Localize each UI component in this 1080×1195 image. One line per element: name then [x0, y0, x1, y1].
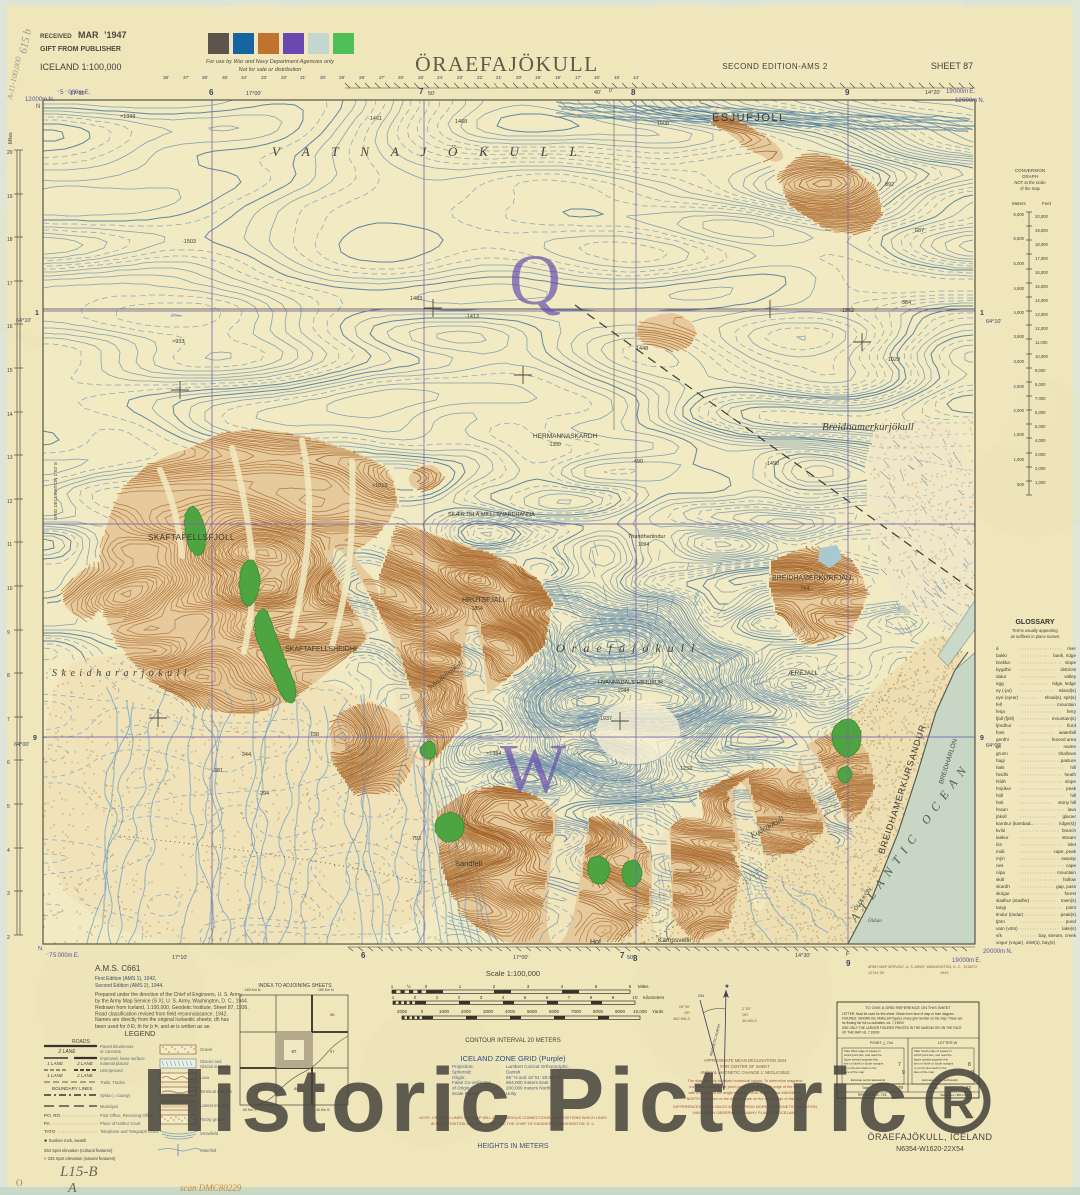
svg-text:★: ★ — [724, 983, 729, 990]
svg-text:CONVERSION: CONVERSION — [1015, 168, 1045, 173]
svg-text:vogur (vogar), inlet(s), bay(s: vogur (vogar), inlet(s), bay(s) — [996, 940, 1055, 945]
svg-text:12 000m N.: 12 000m N. — [955, 98, 985, 104]
svg-text:×1013: ×1013 — [372, 483, 387, 489]
svg-text:NOT at the scale: NOT at the scale — [1014, 180, 1046, 185]
svg-text:13,000: 13,000 — [1035, 312, 1048, 317]
svg-text:Miles: Miles — [638, 984, 649, 989]
svg-text:ravine: ravine — [1063, 744, 1076, 749]
svg-text:fell: fell — [996, 702, 1002, 707]
svg-text:N: N — [36, 104, 40, 110]
svg-text:17°00′: 17°00′ — [246, 91, 261, 97]
svg-text:·1490: ·1490 — [765, 461, 779, 467]
svg-text:GN: GN — [698, 993, 704, 998]
svg-text:BREIDHAMERKURFJALL: BREIDHAMERKURFJALL — [772, 575, 854, 582]
svg-text:Scale 1:100,000: Scale 1:100,000 — [486, 969, 540, 978]
svg-text:20: 20 — [7, 150, 13, 156]
svg-text:districts: districts — [1060, 667, 1076, 672]
svg-text:·1029: ·1029 — [886, 357, 900, 363]
svg-text:462 MILS: 462 MILS — [673, 1016, 690, 1021]
svg-text:2 LANE: 2 LANE — [76, 1073, 94, 1078]
svg-text:hnjúkur: hnjúkur — [996, 786, 1012, 791]
svg-text:kambur (kambad..: kambur (kambad.. — [996, 821, 1033, 826]
svg-text:branch: branch — [1062, 828, 1076, 833]
svg-text:FIGURES: IGNORE the SMALLER: FIGURES: IGNORE the SMALLER figures of a… — [842, 1017, 963, 1021]
svg-text:USE ONLY THE LARGER FIGURES PR: USE ONLY THE LARGER FIGURES PRINTED IN T… — [842, 1026, 962, 1030]
svg-text:Place of Harbor Court: Place of Harbor Court — [100, 1121, 141, 1126]
svg-text:á: á — [996, 646, 999, 651]
svg-text:5000: 5000 — [527, 1009, 538, 1014]
svg-text:SKAFTAFELLSHEIDHI: SKAFTAFELLSHEIDHI — [285, 646, 357, 653]
svg-text:1: 1 — [980, 310, 984, 317]
svg-text:egg: egg — [996, 681, 1004, 686]
svg-text:ARMY MAP SERVICE, U. S. ARMY,: ARMY MAP SERVICE, U. S. ARMY, WASHINGTON… — [868, 965, 977, 969]
svg-text:vatn (vötn): vatn (vötn) — [996, 926, 1018, 931]
svg-text:9,000: 9,000 — [1035, 368, 1046, 373]
svg-text:0′: 0′ — [609, 88, 613, 94]
svg-text:3,000: 3,000 — [1014, 359, 1025, 364]
svg-text:9000: 9000 — [615, 1009, 626, 1014]
svg-text:14′: 14′ — [633, 75, 639, 80]
svg-text:·384: ·384 — [900, 300, 911, 306]
svg-text:1943: 1943 — [940, 971, 948, 975]
svg-text:15′: 15′ — [614, 75, 620, 80]
svg-text:hagi: hagi — [996, 758, 1005, 763]
svg-text:14°30′: 14°30′ — [795, 953, 810, 959]
svg-text:26′: 26′ — [398, 75, 404, 80]
svg-text:2,000: 2,000 — [1035, 466, 1046, 471]
svg-text:laekur: laekur — [996, 835, 1009, 840]
svg-text:·1503: ·1503 — [182, 239, 196, 245]
svg-text:8000: 8000 — [593, 1009, 604, 1014]
svg-text:R: R — [941, 1076, 974, 1128]
svg-text:lava: lava — [1068, 807, 1077, 812]
svg-text:hill: hill — [1070, 765, 1076, 770]
svg-text:17°10′: 17°10′ — [70, 91, 85, 97]
svg-text:dalur: dalur — [996, 674, 1007, 679]
svg-text:First Edition (AMS 1), 1942,: First Edition (AMS 1), 1942, — [95, 976, 156, 982]
svg-text:1 LANE: 1 LANE — [47, 1073, 64, 1078]
svg-text:ridge(s)): ridge(s)) — [1059, 821, 1077, 826]
svg-text:13: 13 — [7, 455, 13, 461]
svg-text:20 000m N.: 20 000m N. — [983, 949, 1013, 955]
svg-text:5,000: 5,000 — [1014, 261, 1025, 266]
svg-text:SKAFTAFELLSFJOLL: SKAFTAFELLSFJOLL — [148, 533, 235, 542]
svg-text:4: 4 — [7, 848, 10, 854]
svg-text:island(s): island(s) — [1059, 688, 1077, 693]
svg-text:vík: vík — [996, 933, 1003, 938]
svg-text:ferry: ferry — [1067, 709, 1077, 714]
svg-text:6: 6 — [209, 88, 214, 97]
svg-text:shoal(s), spit(s): shoal(s), spit(s) — [1045, 695, 1077, 700]
svg-text:8: 8 — [7, 673, 10, 679]
svg-text:28′: 28′ — [359, 75, 365, 80]
svg-text:ÆREJALL: ÆREJALL — [788, 670, 819, 677]
svg-text:material placed: material placed — [100, 1061, 129, 1066]
svg-text:6: 6 — [361, 951, 366, 960]
svg-text:9: 9 — [33, 735, 37, 742]
svg-text:1000: 1000 — [439, 1009, 450, 1014]
svg-text:tindur (tindar): tindur (tindar) — [996, 912, 1024, 917]
svg-text:2: 2 — [7, 935, 10, 941]
svg-text:10: 10 — [7, 586, 13, 592]
svg-text:Q: Q — [509, 240, 561, 320]
svg-text:HERMANNASKARDH: HERMANNASKARDH — [533, 433, 598, 440]
svg-text:·344: ·344 — [240, 752, 251, 758]
svg-text:19 000m E.: 19 000m E. — [952, 958, 981, 964]
svg-text:ferja: ferja — [996, 709, 1005, 714]
svg-text:lón: lón — [996, 842, 1003, 847]
svg-text:15,000: 15,000 — [1035, 284, 1048, 289]
svg-text:11: 11 — [7, 542, 12, 548]
svg-text:V A T N A J Ö K: V A T N A J Ö K U L L — [272, 144, 580, 159]
svg-text:HVANNADALS-HNJÚKUR: HVANNADALS-HNJÚKUR — [598, 679, 663, 686]
svg-text:64°00′: 64°00′ — [14, 742, 29, 748]
svg-text:OR: OR — [684, 1010, 690, 1015]
svg-text:gap, pass: gap, pass — [1056, 884, 1077, 889]
svg-text:31′: 31′ — [300, 75, 306, 80]
svg-text:Names are directly from the or: Names are directly from the original Ice… — [95, 1017, 229, 1023]
svg-text:Second Edition (AMS 2), 1944.: Second Edition (AMS 2), 1944. — [95, 983, 164, 989]
svg-text:waterfall: waterfall — [1059, 730, 1076, 735]
svg-text:bakki: bakki — [996, 653, 1007, 658]
svg-text:4000: 4000 — [505, 1009, 516, 1014]
svg-text:Sýsla (= county): Sýsla (= county) — [100, 1093, 131, 1098]
svg-text:1,000: 1,000 — [1035, 480, 1046, 485]
svg-text:30′: 30′ — [320, 75, 326, 80]
svg-text:SHEET 87: SHEET 87 — [931, 61, 973, 71]
svg-text:12 000m N.: 12 000m N. — [25, 97, 55, 103]
svg-text:500: 500 — [1017, 482, 1025, 487]
svg-text:3,000: 3,000 — [1035, 452, 1046, 457]
svg-text:9: 9 — [846, 959, 851, 968]
svg-text:S k e i d h a r a r j o k u l: S k e i d h a r a r j o k u l l — [52, 668, 188, 679]
svg-text:nípa: nípa — [996, 870, 1005, 875]
svg-text:6,000: 6,000 — [1035, 410, 1046, 415]
svg-text:ROADS: ROADS — [72, 1039, 90, 1045]
svg-text:⁻7 5 000m E.: ⁻7 5 000m E. — [46, 953, 80, 959]
svg-text:16: 16 — [7, 324, 13, 330]
svg-text:✱ Sunken rock, awash: ✱ Sunken rock, awash — [44, 1138, 87, 1143]
svg-text:17,000: 17,000 — [1035, 256, 1048, 261]
svg-text:hill: hill — [1070, 793, 1076, 798]
svg-text:ESJUFJOLL: ESJUFJOLL — [712, 112, 787, 124]
svg-text:múli: múli — [996, 849, 1004, 854]
svg-text:Prepared under the direction o: Prepared under the direction of the Chie… — [95, 992, 243, 998]
svg-text:point: point — [1066, 905, 1077, 910]
svg-text:town(s): town(s) — [1061, 898, 1077, 903]
svg-text:3: 3 — [7, 891, 10, 897]
svg-text:·1413: ·1413 — [465, 314, 479, 320]
svg-text:4,500: 4,500 — [1014, 286, 1025, 291]
svg-text:ICELAND 1:100,000: ICELAND 1:100,000 — [40, 62, 122, 72]
svg-text:11,000: 11,000 — [1035, 340, 1048, 345]
svg-text:eyri (eyrar): eyri (eyrar) — [996, 695, 1019, 700]
svg-text:15: 15 — [7, 368, 13, 374]
svg-text:swamp: swamp — [1061, 856, 1076, 861]
svg-text:38′: 38′ — [163, 75, 169, 80]
svg-text:18,000: 18,000 — [1035, 242, 1048, 247]
svg-text:7: 7 — [620, 951, 625, 960]
svg-text:’1947: ’1947 — [104, 30, 127, 40]
svg-text:forest: forest — [1065, 891, 1077, 896]
svg-text:16,000: 16,000 — [1035, 270, 1048, 275]
svg-text:as suffixes in place names: as suffixes in place names — [1010, 634, 1059, 639]
svg-text:12: 12 — [7, 499, 13, 505]
svg-text:GRAPH: GRAPH — [1022, 174, 1038, 179]
svg-text:Miles: Miles — [8, 132, 14, 144]
svg-text:19 000m E.: 19 000m E. — [946, 89, 975, 95]
svg-text:17°10′: 17°10′ — [172, 955, 187, 961]
svg-text:64°10′: 64°10′ — [986, 319, 1001, 325]
svg-text:2044: 2044 — [618, 688, 629, 694]
svg-text:brekka: brekka — [996, 660, 1010, 665]
svg-text:shallows: shallows — [1058, 751, 1076, 756]
svg-text:gil: gil — [996, 744, 1001, 749]
svg-text:35′: 35′ — [222, 75, 228, 80]
svg-text:GIFT FROM PUBLISHER: GIFT FROM PUBLISHER — [40, 46, 121, 53]
svg-text:Breidhamerkurjökull: Breidhamerkurjökull — [822, 421, 914, 433]
svg-text:19: 19 — [7, 194, 13, 200]
svg-text:glacier: glacier — [1062, 814, 1076, 819]
svg-text:tjörn: tjörn — [996, 919, 1005, 924]
svg-text:MAR: MAR — [78, 30, 99, 40]
svg-text:687: 687 — [915, 228, 924, 234]
svg-text:·294: ·294 — [258, 791, 269, 797]
svg-text:29′: 29′ — [339, 75, 345, 80]
svg-text:5: 5 — [7, 804, 10, 810]
svg-text:·1508: ·1508 — [655, 121, 669, 127]
svg-text:12744 30: 12744 30 — [868, 971, 884, 975]
svg-text:hóll: hóll — [996, 793, 1003, 798]
svg-text:17: 17 — [7, 281, 13, 287]
svg-text:TATO: TATO — [44, 1129, 56, 1134]
svg-text:×1399: ×1399 — [120, 114, 135, 120]
svg-text:RECEIVED: RECEIVED — [40, 33, 72, 40]
svg-text:heidhi: heidhi — [996, 772, 1008, 777]
svg-text:6,000: 6,000 — [1014, 212, 1025, 217]
svg-text:160 Km N.: 160 Km N. — [318, 988, 335, 992]
svg-text:2,000: 2,000 — [1014, 408, 1025, 413]
svg-text:holt: holt — [996, 800, 1004, 805]
svg-text:W: W — [500, 731, 566, 808]
svg-text:2000: 2000 — [397, 1009, 408, 1014]
svg-text:6000: 6000 — [549, 1009, 560, 1014]
svg-text:TO GIVE A GRID REFERENCE ON TH: TO GIVE A GRID REFERENCE ON THIS SHEET — [865, 1005, 951, 1010]
svg-text:1 LANE: 1 LANE — [47, 1061, 64, 1066]
svg-text:·1854: ·1854 — [470, 606, 483, 612]
svg-text:fenced area: fenced area — [1052, 737, 1077, 742]
svg-text:·738: ·738 — [308, 732, 319, 738]
svg-text:·1461: ·1461 — [368, 116, 382, 122]
svg-text:Unimproved: Unimproved — [100, 1068, 123, 1073]
svg-text:ey (-jar): ey (-jar) — [996, 688, 1012, 693]
svg-text:CONTOUR INTERVAL 20 METERS: CONTOUR INTERVAL 20 METERS — [465, 1038, 560, 1044]
svg-text:5,000: 5,000 — [1035, 424, 1046, 429]
svg-text:Sandfell: Sandfell — [455, 859, 482, 868]
svg-text:mountain: mountain — [1057, 870, 1076, 875]
svg-text:·1862: ·1862 — [840, 308, 854, 314]
svg-text:Feet: Feet — [1042, 201, 1052, 206]
svg-text:×933: ×933 — [172, 339, 184, 345]
svg-text:valley: valley — [1064, 674, 1076, 679]
svg-text:264 Spot elevation (cultural: 264 Spot elevation (cultural features) — [44, 1148, 113, 1153]
svg-text:·381: ·381 — [212, 768, 223, 774]
svg-text:bank, ridge: bank, ridge — [1053, 653, 1076, 658]
svg-text:1,000: 1,000 — [1014, 457, 1025, 462]
svg-text:scan DMC80229: scan DMC80229 — [180, 1183, 242, 1193]
svg-text:8,000: 8,000 — [1035, 382, 1046, 387]
svg-text:64°10′: 64°10′ — [16, 318, 31, 324]
svg-text:17°00′: 17°00′ — [513, 955, 528, 961]
svg-text:34′: 34′ — [241, 75, 247, 80]
svg-text:peak: peak — [1066, 786, 1077, 791]
svg-text:3,500: 3,500 — [1014, 334, 1025, 339]
svg-text:2,500: 2,500 — [1014, 384, 1025, 389]
svg-text:8: 8 — [631, 88, 636, 97]
svg-text:10: 10 — [632, 995, 638, 1000]
svg-text:4,000: 4,000 — [1035, 438, 1046, 443]
svg-text:F: F — [846, 952, 850, 958]
svg-text:HRUTSFJALL: HRUTSFJALL — [462, 597, 506, 604]
svg-text:N.: N. — [38, 946, 44, 952]
svg-text:ÖRAEFAJÖKULL: ÖRAEFAJÖKULL — [415, 52, 599, 76]
svg-text:20,000: 20,000 — [1035, 214, 1048, 219]
svg-text:mountain: mountain — [1057, 702, 1076, 707]
svg-text:2 LANE: 2 LANE — [76, 1061, 94, 1066]
svg-text:hals: hals — [996, 765, 1005, 770]
svg-text:1403: 1403 — [410, 296, 422, 302]
svg-text:fjördhur: fjördhur — [996, 723, 1012, 728]
svg-text:10,000: 10,000 — [1035, 354, 1048, 359]
svg-text:6: 6 — [7, 760, 10, 766]
svg-text:Not for sale or distribution: Not for sale or distribution — [239, 67, 302, 73]
svg-text:40′: 40′ — [594, 90, 601, 96]
svg-text:96: 96 — [330, 1012, 335, 1017]
svg-text:LETTER W: LETTER W — [938, 1041, 958, 1045]
svg-text:Historic Pictoric: Historic Pictoric — [142, 1051, 912, 1151]
svg-text:33′: 33′ — [261, 75, 267, 80]
svg-text:2°02′: 2°02′ — [742, 1006, 751, 1011]
svg-text:grunn: grunn — [996, 751, 1008, 756]
svg-text:sladhur (stadhir): sladhur (stadhir) — [996, 898, 1030, 903]
svg-text:stony hill: stony hill — [1058, 800, 1076, 805]
svg-text:1: 1 — [35, 310, 39, 317]
svg-text:river: river — [1067, 646, 1076, 651]
svg-text:heath: heath — [1065, 772, 1077, 777]
svg-text:Hof: Hof — [590, 939, 601, 946]
svg-text:skógur: skógur — [996, 891, 1010, 896]
svg-text:Municipal: Municipal — [100, 1104, 118, 1109]
svg-text:1094: 1094 — [638, 542, 649, 548]
svg-text:fiord: fiord — [1067, 723, 1076, 728]
svg-text:× 333 Spot elevation (natural: × 333 Spot elevation (natural features) — [44, 1156, 116, 1161]
svg-text:face of the map:: face of the map: — [914, 1070, 935, 1074]
svg-text:7: 7 — [419, 87, 424, 96]
svg-text:O: O — [16, 1178, 23, 1188]
svg-text:GLOSSARY: GLOSSARY — [1015, 619, 1054, 626]
svg-text:SECOND EDITION-AMS 2: SECOND EDITION-AMS 2 — [722, 62, 828, 71]
svg-text:·1233: ·1233 — [678, 766, 692, 772]
svg-text:bay, stream, creek: bay, stream, creek — [1039, 933, 1077, 938]
svg-text:tangi: tangi — [996, 905, 1006, 910]
svg-text:slope: slope — [1065, 779, 1076, 784]
svg-text:3000: 3000 — [483, 1009, 494, 1014]
svg-text:36 MILS: 36 MILS — [742, 1018, 757, 1023]
svg-text:Kilometers: Kilometers — [643, 995, 665, 1000]
svg-text:fjall (fjöll): fjall (fjöll) — [996, 716, 1015, 721]
svg-text:7,000: 7,000 — [1035, 396, 1046, 401]
svg-text:inlet: inlet — [1068, 842, 1077, 847]
svg-text:slope: slope — [1065, 660, 1076, 665]
svg-text:37′: 37′ — [183, 75, 189, 80]
svg-text:mountain(s): mountain(s) — [1052, 716, 1077, 721]
svg-text:·793: ·793 — [410, 836, 421, 842]
svg-text:14: 14 — [7, 412, 13, 418]
svg-text:2 LANE: 2 LANE — [57, 1049, 76, 1055]
svg-text:bygdhir: bygdhir — [996, 667, 1012, 672]
svg-text:18: 18 — [7, 237, 13, 243]
svg-text:10,000: 10,000 — [633, 1009, 647, 1014]
svg-text:lake(s): lake(s) — [1062, 926, 1076, 931]
svg-text:foss: foss — [996, 730, 1005, 735]
svg-text:892: 892 — [885, 182, 894, 188]
svg-text:8: 8 — [968, 1062, 971, 1068]
svg-text:OR: OR — [742, 1012, 748, 1017]
svg-text:POINT △ 744: POINT △ 744 — [870, 1041, 893, 1045]
svg-text:of the map: of the map — [1020, 186, 1040, 191]
svg-text:jökull: jökull — [995, 814, 1006, 819]
svg-text:L15-B: L15-B — [59, 1164, 98, 1180]
svg-text:hlídh: hlídh — [996, 779, 1006, 784]
svg-text:36′: 36′ — [202, 75, 208, 80]
svg-text:5,500: 5,500 — [1014, 236, 1025, 241]
svg-text:hraun: hraun — [996, 807, 1008, 812]
svg-text:4,000: 4,000 — [1014, 310, 1025, 315]
svg-text:skardh: skardh — [996, 884, 1010, 889]
svg-text:BOUNDARY LINES: BOUNDARY LINES — [52, 1086, 92, 1091]
svg-text:1468: 1468 — [455, 119, 467, 125]
svg-text:26°30′: 26°30′ — [679, 1004, 690, 1009]
svg-text:·1350: ·1350 — [548, 442, 561, 448]
svg-text:1448: 1448 — [636, 346, 648, 352]
svg-text:Öldula: Öldula — [868, 918, 882, 924]
svg-text:·: · — [492, 862, 494, 868]
svg-text:7: 7 — [7, 717, 10, 723]
svg-text:·1937: ·1937 — [598, 716, 612, 722]
svg-text:50′: 50′ — [428, 91, 435, 97]
svg-text:Terms usually appearing: Terms usually appearing — [1012, 628, 1058, 633]
svg-text:Thuridhartindur: Thuridhartindur — [628, 534, 665, 540]
svg-text:9: 9 — [980, 735, 984, 742]
svg-text:A: A — [67, 1181, 77, 1195]
svg-text:Yards: Yards — [652, 1009, 664, 1014]
svg-text:peak(s): peak(s) — [1061, 912, 1077, 917]
svg-text:mýri: mýri — [996, 856, 1005, 861]
svg-text:A.M.S. C661: A.M.S. C661 — [95, 964, 141, 973]
svg-text:pasture: pasture — [1061, 758, 1077, 763]
svg-text:19,000: 19,000 — [1035, 228, 1048, 233]
svg-text:9: 9 — [7, 630, 10, 636]
svg-text:LETTER: Must be used for th: LETTER: Must be used for this sheet. Obt… — [842, 1012, 954, 1016]
svg-text:·490: ·490 — [632, 459, 643, 465]
svg-text:Redrawn from Iceland, 1:100,00: Redrawn from Iceland, 1:100,000, Geodeti… — [95, 1005, 249, 1011]
svg-text:744: 744 — [800, 586, 809, 592]
svg-text:½: ½ — [407, 983, 411, 989]
svg-text:14,000: 14,000 — [1035, 298, 1048, 303]
svg-text:kvísl: kvísl — [996, 828, 1005, 833]
svg-text:stream: stream — [1062, 835, 1076, 840]
svg-text:SKÆR DH Á MILLI SNARDHANNA: SKÆR DH Á MILLI SNARDHANNA — [448, 511, 535, 518]
